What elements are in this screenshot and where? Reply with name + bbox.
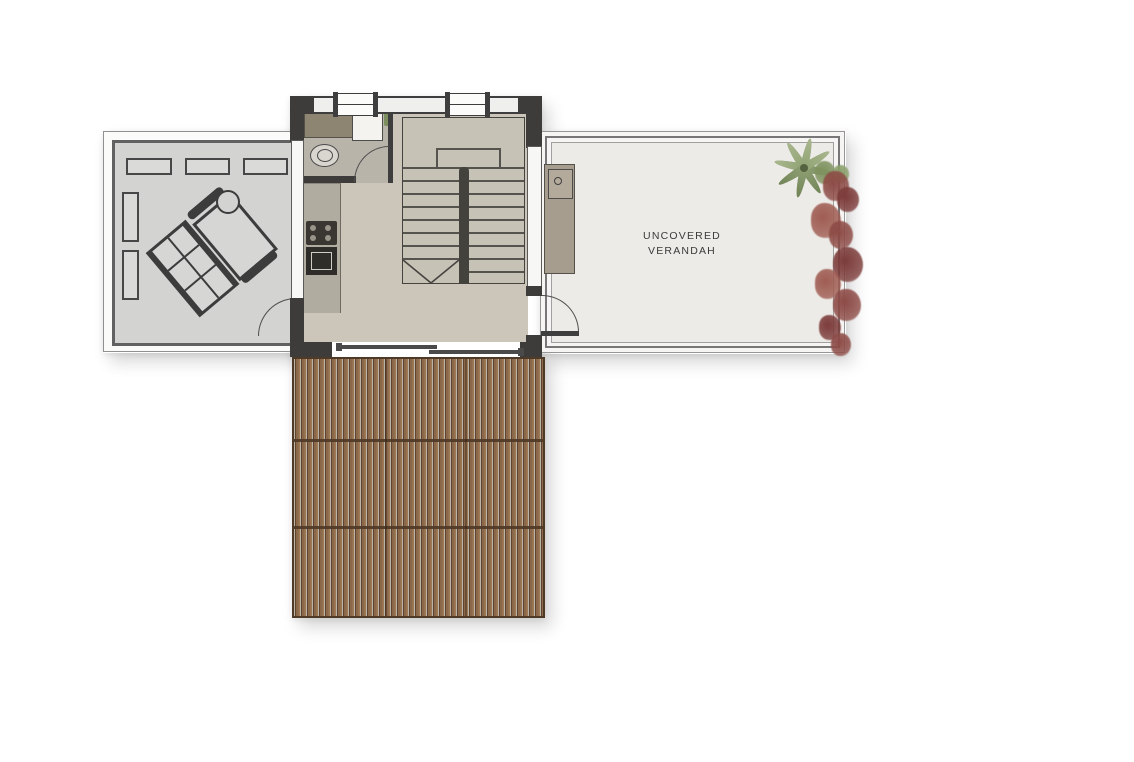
sliding-door-panel	[341, 345, 437, 349]
bathroom-sink	[352, 112, 383, 141]
bench-cushion	[122, 250, 139, 300]
stair-tread	[469, 180, 524, 182]
bench-cushion	[243, 158, 288, 175]
stair-tread	[469, 258, 524, 260]
verandah-label: UNCOVERED VERANDAH	[612, 229, 752, 259]
flower-blob	[833, 289, 861, 321]
stair-tread	[403, 193, 459, 195]
window	[445, 93, 490, 116]
pergola-seam	[465, 359, 467, 616]
stairwell-line	[436, 148, 438, 168]
stairwell-line	[436, 148, 499, 150]
stair-tread	[469, 206, 524, 208]
flower-blob	[829, 221, 853, 249]
pergola-deck	[292, 357, 545, 618]
wall-segment	[290, 96, 542, 114]
stair-break-line	[403, 260, 459, 283]
stair-tread	[403, 232, 459, 234]
stair-tread	[403, 258, 459, 260]
stair-tread	[403, 180, 459, 182]
stairwell-line	[499, 148, 501, 168]
oven	[306, 247, 337, 275]
stair-tread	[469, 219, 524, 221]
terrace-lounge-room	[103, 131, 309, 352]
bougainvillea-plant	[803, 169, 859, 355]
oven-door	[311, 252, 332, 270]
stair-tread	[469, 232, 524, 234]
sliding-door-cap	[336, 343, 342, 351]
window	[333, 93, 378, 116]
stair-tread	[469, 271, 524, 273]
wall-segment	[526, 96, 542, 148]
stair-tread	[403, 245, 459, 247]
wall-segment	[304, 176, 356, 183]
pergola-beam	[294, 526, 543, 529]
stove	[306, 221, 337, 245]
stair-divider-wall	[459, 167, 469, 283]
stair-tread	[469, 193, 524, 195]
sliding-door-cap	[518, 348, 524, 356]
verandah-door-leaf	[541, 331, 579, 336]
toilet-bowl	[317, 149, 333, 162]
stair-tread	[403, 219, 459, 221]
pergola-seam	[385, 359, 387, 616]
flower-blob	[837, 187, 859, 212]
round-side-table	[216, 190, 240, 214]
window-band	[291, 140, 304, 302]
faucet-icon	[554, 177, 562, 185]
bbq-sink	[548, 169, 573, 199]
verandah-label-line1: UNCOVERED	[643, 230, 721, 242]
wall-segment	[290, 96, 304, 142]
bench-cushion	[126, 158, 172, 175]
stair-tread	[469, 245, 524, 247]
stair-tread	[403, 206, 459, 208]
sliding-door-panel	[429, 350, 521, 354]
wall-segment	[290, 342, 332, 357]
pergola-beam	[294, 439, 543, 442]
bbq-unit	[544, 164, 575, 274]
floor-plan: UNCOVERED VERANDAH	[0, 0, 1134, 762]
window-band	[527, 146, 542, 290]
staircase	[402, 117, 525, 284]
bench-cushion	[122, 192, 139, 242]
uncovered-verandah: UNCOVERED VERANDAH	[540, 131, 845, 353]
wall-segment	[526, 286, 542, 296]
toilet	[310, 144, 339, 167]
flower-blob	[831, 333, 851, 356]
verandah-label-line2: VERANDAH	[648, 245, 716, 257]
